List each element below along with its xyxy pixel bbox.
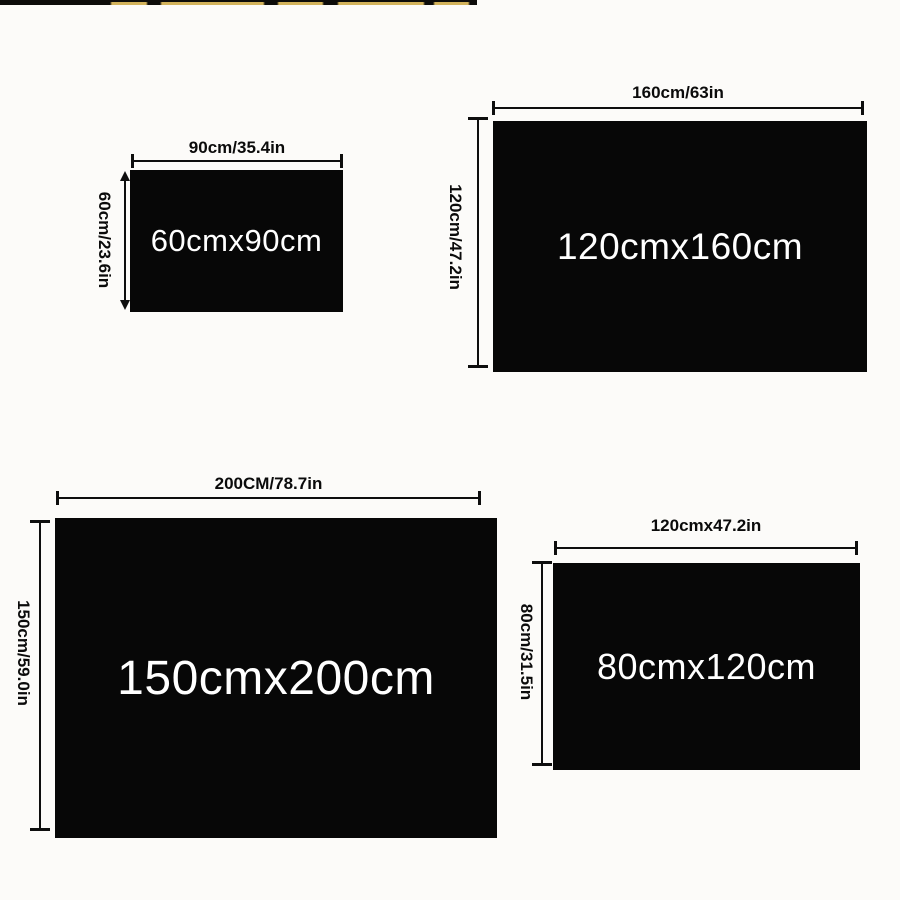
width-dimension-line xyxy=(493,107,863,109)
height-label: 60cm/23.6in xyxy=(94,192,114,288)
height-label: 120cm/47.2in xyxy=(445,184,465,290)
height-dimension-line xyxy=(541,562,543,765)
cropped-top-image-strip xyxy=(0,0,477,5)
size-label: 80cmx120cm xyxy=(597,646,816,688)
size-label: 120cmx160cm xyxy=(557,226,803,268)
width-label: 160cm/63in xyxy=(493,83,863,103)
panel-rect-80x120: 80cmx120cm xyxy=(553,563,860,770)
width-dimension-line xyxy=(57,497,480,499)
width-dimension-line xyxy=(132,160,342,162)
panel-rect-150x200: 150cmx200cm xyxy=(55,518,497,838)
panel-rect-60x90: 60cmx90cm xyxy=(130,170,343,312)
height-dimension-line xyxy=(477,118,479,367)
height-label: 80cm/31.5in xyxy=(516,604,536,700)
width-label: 120cmx47.2in xyxy=(555,516,857,536)
height-dimension-line xyxy=(39,521,41,830)
size-label: 150cmx200cm xyxy=(117,651,435,706)
size-label: 60cmx90cm xyxy=(151,223,323,259)
width-dimension-line xyxy=(555,547,857,549)
size-chart-image: 60cmx90cm 90cm/35.4in 60cm/23.6in 120cmx… xyxy=(0,0,900,900)
height-dimension-line xyxy=(124,173,126,308)
panel-rect-120x160: 120cmx160cm xyxy=(493,121,867,372)
height-label: 150cm/59.0in xyxy=(13,600,33,706)
width-label: 200CM/78.7in xyxy=(57,474,480,494)
width-label: 90cm/35.4in xyxy=(132,138,342,158)
